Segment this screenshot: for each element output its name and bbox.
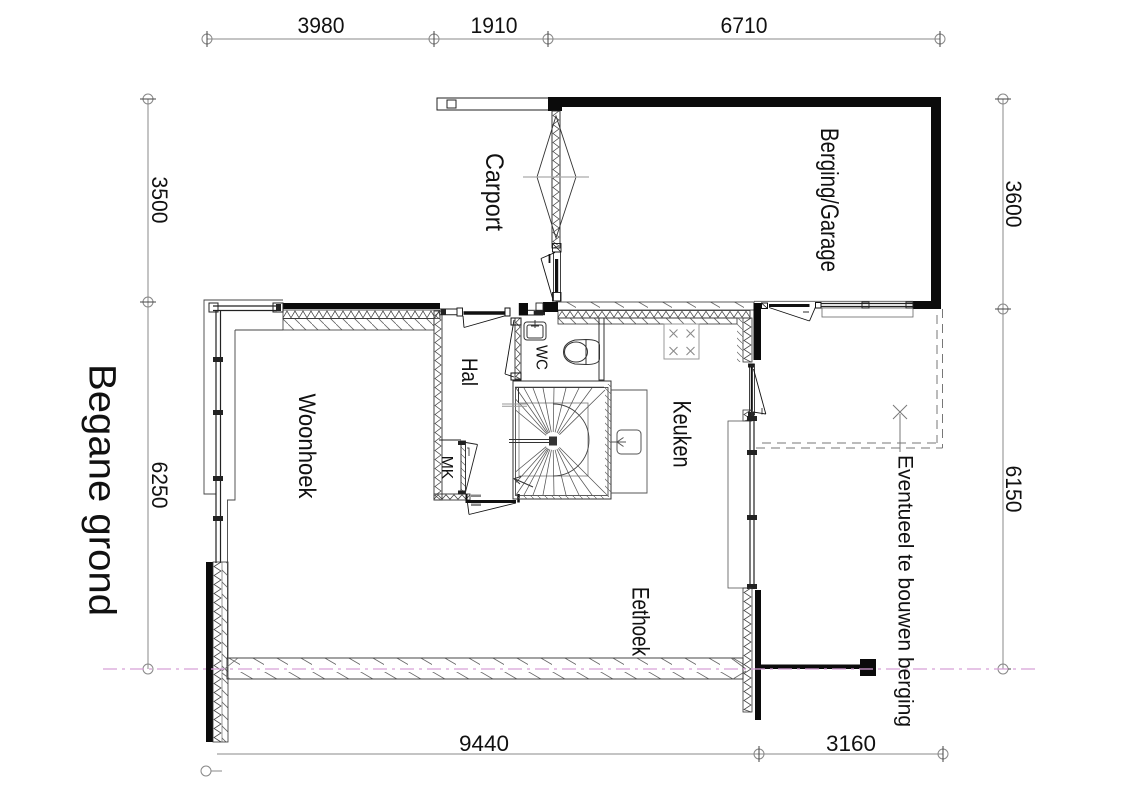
svg-text:Eethoek: Eethoek [627, 587, 654, 657]
svg-text:Woonhoek: Woonhoek [293, 394, 320, 500]
svg-text:3600: 3600 [1001, 181, 1026, 228]
svg-text:WC: WC [533, 345, 550, 370]
svg-text:MK: MK [438, 456, 455, 480]
svg-text:Hal: Hal [457, 358, 482, 386]
svg-text:Begane grond: Begane grond [81, 364, 123, 616]
svg-text:3160: 3160 [826, 731, 876, 756]
svg-text:6250: 6250 [147, 462, 172, 509]
svg-text:3500: 3500 [147, 177, 172, 224]
svg-text:Berging/Garage: Berging/Garage [815, 128, 843, 272]
svg-text:1910: 1910 [471, 13, 518, 38]
svg-text:6150: 6150 [1001, 466, 1026, 513]
svg-text:Keuken: Keuken [668, 401, 696, 468]
svg-text:Eventueel te bouwen berging: Eventueel te bouwen berging [894, 455, 917, 727]
svg-text:6710: 6710 [721, 13, 768, 38]
svg-text:9440: 9440 [459, 731, 509, 756]
svg-text:3980: 3980 [298, 13, 345, 38]
svg-text:Carport: Carport [480, 153, 508, 231]
